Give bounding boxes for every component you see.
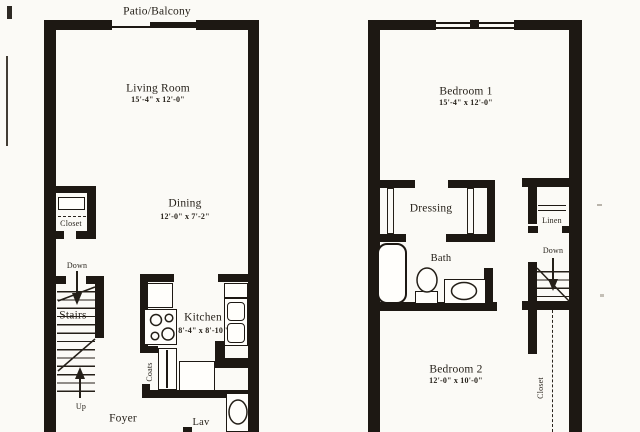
patio-balcony-label: Patio/Balcony — [123, 6, 191, 18]
foyer-label: Foyer — [109, 413, 137, 425]
sink-basin — [227, 302, 245, 321]
kitchen-label: Kitchen — [184, 312, 222, 324]
closet-rod — [467, 188, 474, 234]
floor-plan: Patio/Balcony Living Room 15'-4" x 12'-0… — [0, 0, 640, 432]
stair-treads — [537, 264, 570, 304]
dining-label: Dining — [168, 198, 201, 210]
window-mullion — [470, 20, 479, 29]
stair-wall — [95, 276, 104, 338]
lav-toilet-base — [226, 393, 249, 432]
patio-door-panel — [150, 22, 196, 26]
closet-wall — [76, 231, 96, 239]
bath-toilet-bowl — [417, 268, 437, 292]
entry-door-marker — [183, 427, 192, 432]
stairs-label: Stairs — [59, 310, 86, 322]
patio-door-sill — [112, 26, 196, 28]
coats-closet-door-line — [166, 350, 168, 388]
bath-vanity — [444, 279, 486, 304]
stairs-down-label: Down — [543, 247, 563, 255]
kitchen-counter — [224, 283, 248, 298]
dressing-wall — [374, 234, 406, 242]
stairs-down-label: Down — [67, 262, 87, 270]
linen-wall — [562, 226, 572, 233]
stair-wall — [528, 262, 537, 304]
wall-segment — [248, 20, 259, 432]
coats-closet-wall — [140, 346, 158, 353]
scan-artifact — [597, 204, 602, 206]
coats-closet-wall — [142, 390, 178, 398]
kitchen-wall — [218, 274, 248, 282]
linen-shelf — [538, 205, 566, 206]
bathtub — [377, 243, 407, 304]
stove — [144, 309, 177, 345]
living-room-dims: 15'-4" x 12'-0" — [131, 96, 185, 104]
bedroom2-dims: 12'-0" x 10'-0" — [429, 377, 483, 385]
bedroom2-closet-door-track — [552, 310, 553, 432]
kitchen-counter — [147, 283, 173, 308]
scan-artifact — [7, 6, 12, 19]
kitchen-dims: 8'-4" x 8'-10" — [178, 327, 227, 335]
lav-label: Lav — [193, 418, 210, 429]
dressing-wall — [446, 234, 495, 242]
bedroom2-label: Bedroom 2 — [429, 364, 482, 376]
coats-closet-door — [158, 348, 177, 390]
linen-wall — [528, 186, 537, 224]
closet-label: Closet — [60, 220, 82, 228]
coats-label: Coats — [146, 362, 154, 381]
stair-treads — [57, 284, 95, 396]
closet-shelf — [58, 197, 85, 210]
stair-wall — [522, 301, 572, 310]
bath-label: Bath — [431, 254, 452, 265]
bedroom2-closet-wall — [528, 310, 537, 354]
dressing-wall — [487, 180, 495, 238]
sink-basin — [227, 323, 245, 343]
stairs-up-label: Up — [76, 403, 86, 411]
closet-rod — [58, 216, 86, 217]
closet-wall — [56, 231, 64, 239]
linen-label: Linen — [542, 217, 562, 225]
scan-artifact — [6, 56, 8, 146]
living-room-label: Living Room — [126, 83, 190, 95]
bedroom1-dims: 15'-4" x 12'-0" — [439, 99, 493, 107]
linen-wall — [528, 226, 538, 233]
dining-dims: 12'-0" x 7'-2" — [160, 213, 209, 221]
toilet-tank — [415, 291, 438, 304]
lav-wall — [215, 358, 250, 368]
bedroom1-label: Bedroom 1 — [439, 86, 492, 98]
kitchen-island — [179, 361, 215, 391]
closet-rod — [387, 188, 394, 234]
wall-segment — [44, 20, 56, 432]
scan-artifact — [600, 294, 604, 297]
dressing-wall — [368, 180, 415, 188]
dressing-label: Dressing — [410, 203, 453, 215]
linen-shelf — [538, 210, 566, 211]
bedroom2-closet-label: Closet — [537, 377, 545, 399]
closet-wall — [87, 186, 96, 236]
wall-segment — [368, 20, 380, 432]
stair-wall — [56, 276, 66, 284]
